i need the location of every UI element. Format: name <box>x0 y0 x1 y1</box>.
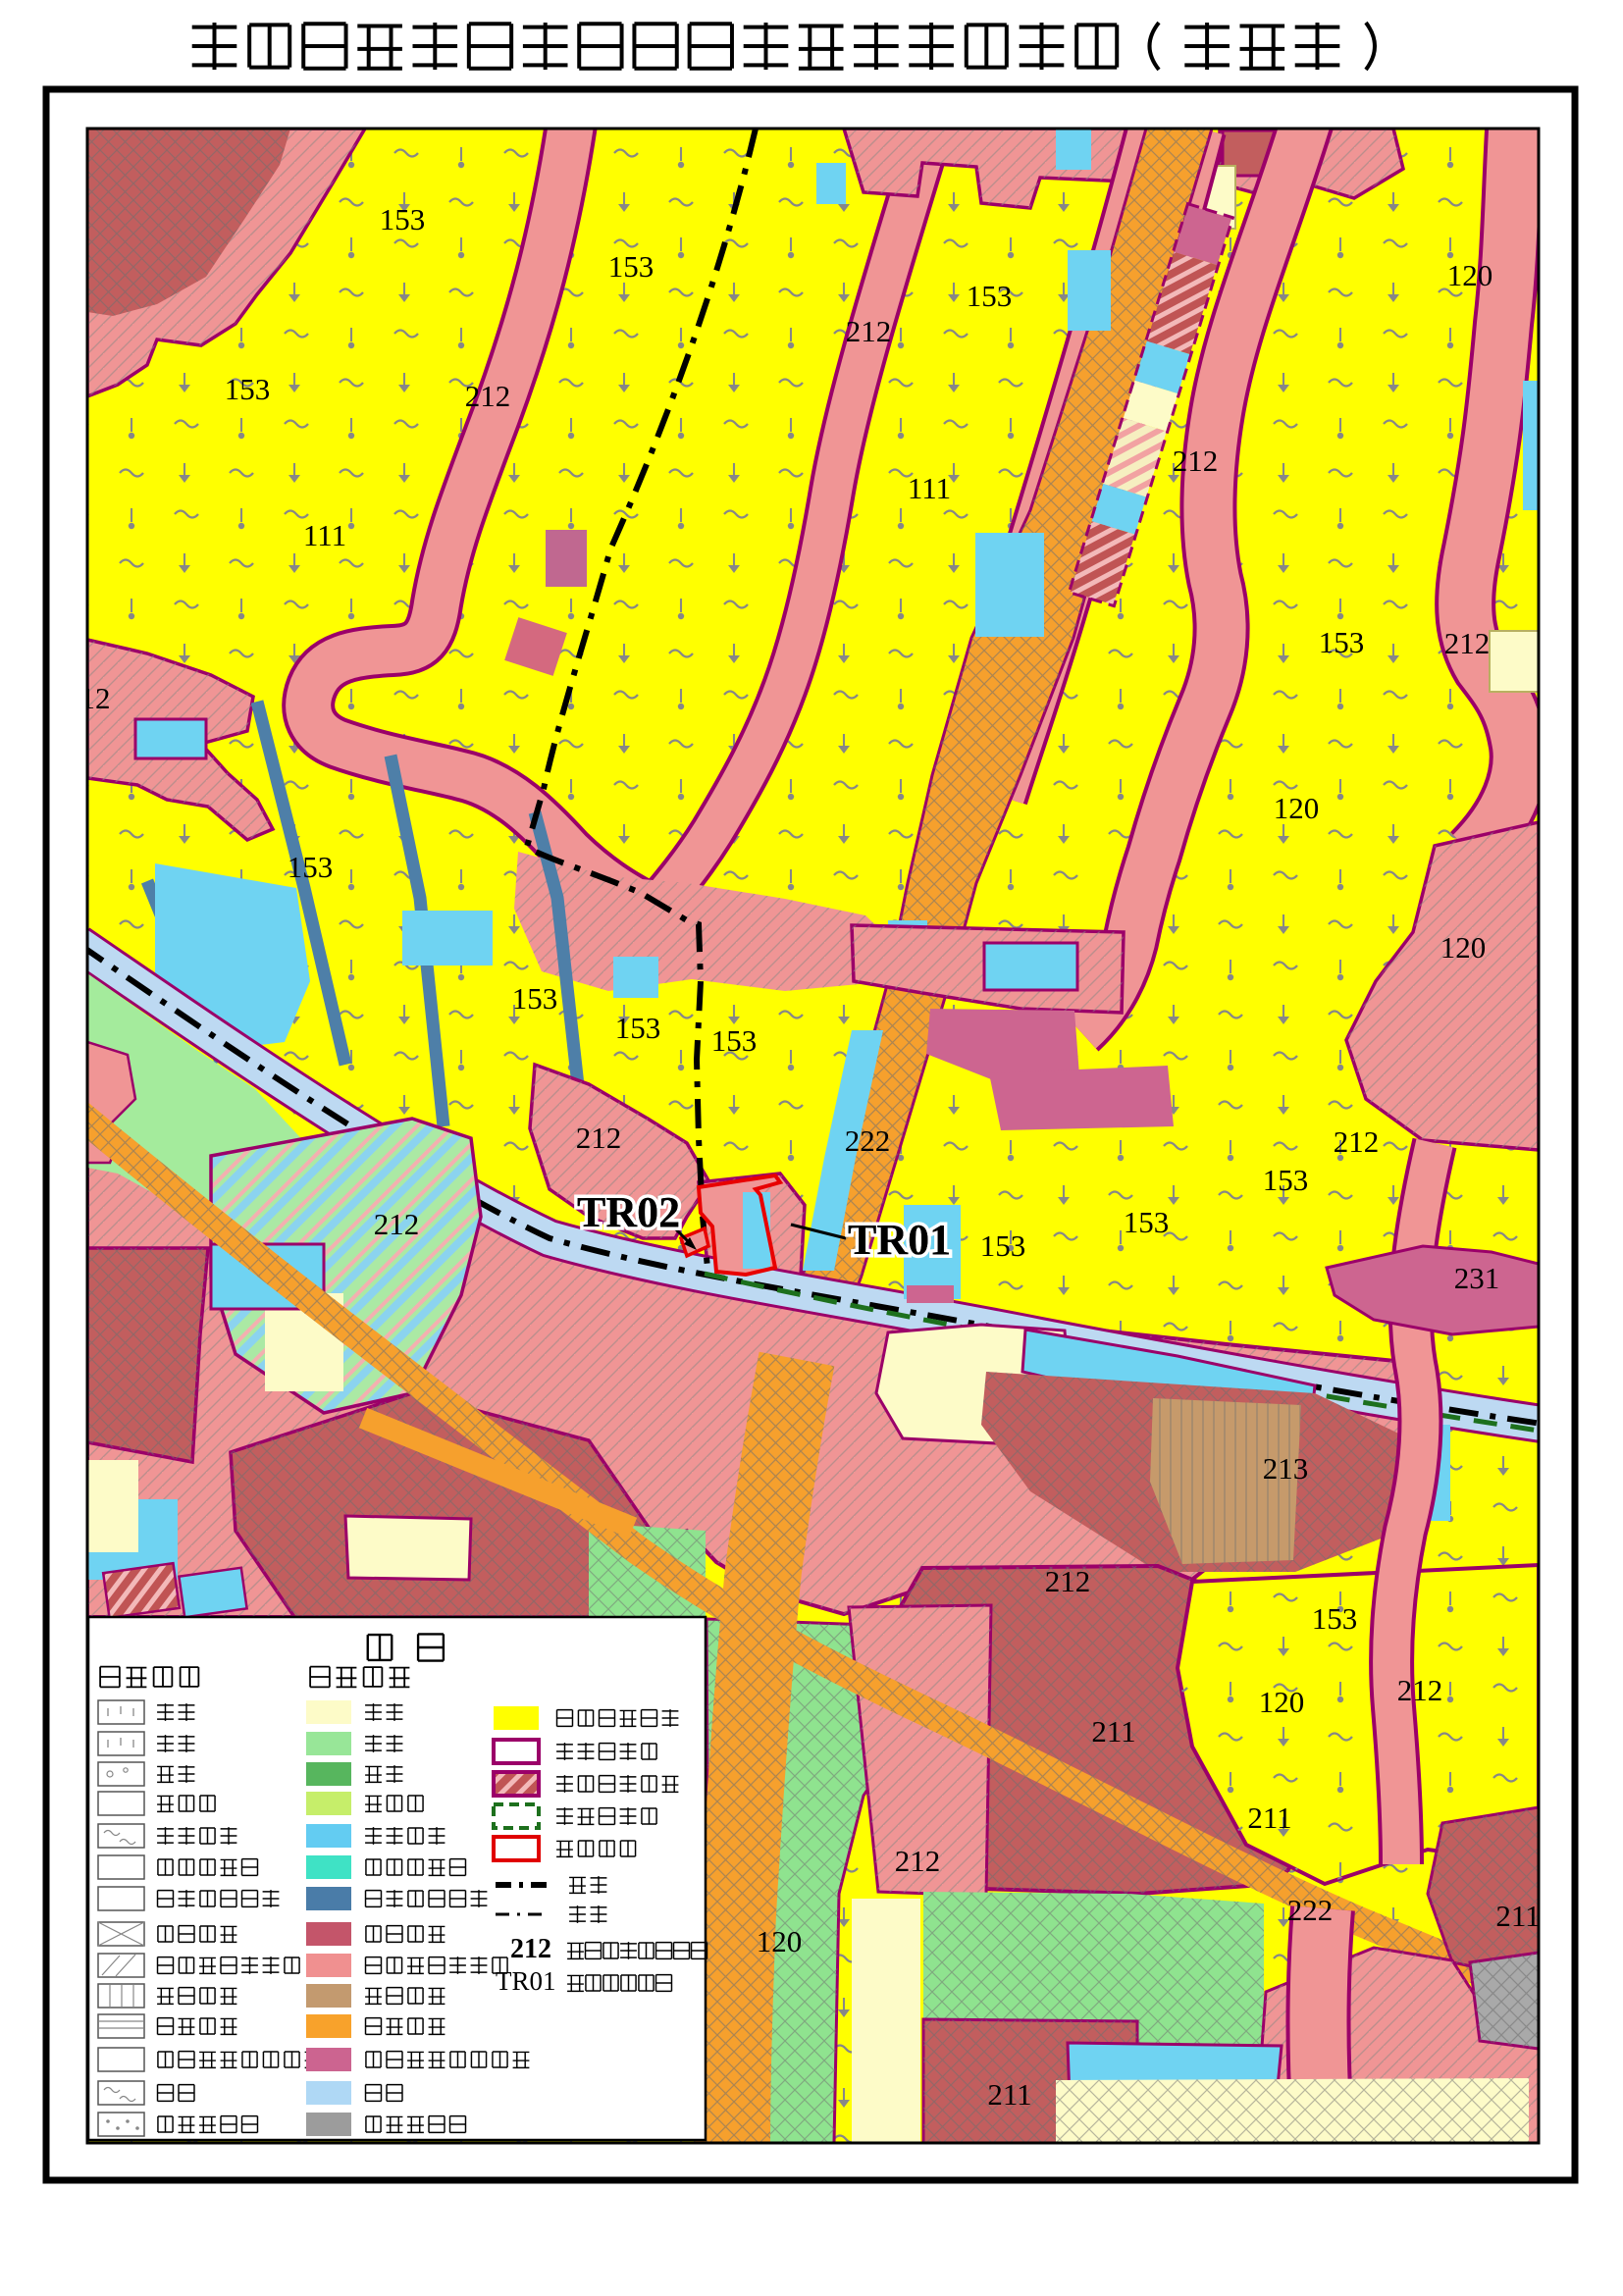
svg-text:231: 231 <box>1454 1261 1500 1295</box>
svg-text:120: 120 <box>757 1924 803 1958</box>
svg-text:111: 111 <box>303 518 346 552</box>
svg-text:211: 211 <box>987 2077 1031 2112</box>
svg-text:211: 211 <box>1091 1714 1135 1748</box>
svg-text:212: 212 <box>846 314 892 348</box>
svg-text:TR01: TR01 <box>848 1216 951 1264</box>
svg-text:222: 222 <box>1287 1893 1334 1927</box>
svg-text:TR01: TR01 <box>496 1966 556 1996</box>
svg-text:153: 153 <box>711 1023 758 1058</box>
svg-text:211: 211 <box>1247 1800 1291 1835</box>
svg-text:120: 120 <box>1274 791 1320 825</box>
svg-text:153: 153 <box>1124 1205 1170 1239</box>
svg-text:120: 120 <box>1447 258 1493 292</box>
svg-text:212: 212 <box>1173 444 1219 478</box>
svg-text:120: 120 <box>1259 1685 1305 1719</box>
svg-text:153: 153 <box>608 249 654 284</box>
svg-text:212: 212 <box>1397 1673 1443 1707</box>
svg-text:111: 111 <box>908 471 951 505</box>
svg-text:222: 222 <box>845 1123 891 1158</box>
svg-text:153: 153 <box>380 202 426 236</box>
svg-text:212: 212 <box>374 1207 420 1241</box>
svg-text:212: 212 <box>465 379 511 413</box>
svg-text:120: 120 <box>1440 930 1487 965</box>
svg-text:153: 153 <box>967 279 1013 313</box>
svg-text:153: 153 <box>288 850 334 884</box>
svg-text:153: 153 <box>225 372 271 406</box>
svg-text:153: 153 <box>1263 1163 1309 1197</box>
svg-text:212: 212 <box>576 1121 622 1155</box>
svg-text:212: 212 <box>1045 1564 1091 1598</box>
svg-text:153: 153 <box>615 1011 661 1045</box>
svg-text:153: 153 <box>1312 1601 1358 1636</box>
svg-text:153: 153 <box>980 1228 1026 1263</box>
svg-text:213: 213 <box>1263 1451 1309 1486</box>
svg-text:212: 212 <box>1444 626 1491 660</box>
svg-text:212: 212 <box>895 1844 941 1878</box>
svg-text:TR02: TR02 <box>577 1188 680 1236</box>
svg-text:211: 211 <box>1495 1899 1540 1933</box>
svg-text:153: 153 <box>512 981 558 1016</box>
svg-text:153: 153 <box>1319 625 1365 659</box>
svg-text:212: 212 <box>1334 1124 1380 1159</box>
svg-text:212: 212 <box>510 1934 551 1964</box>
